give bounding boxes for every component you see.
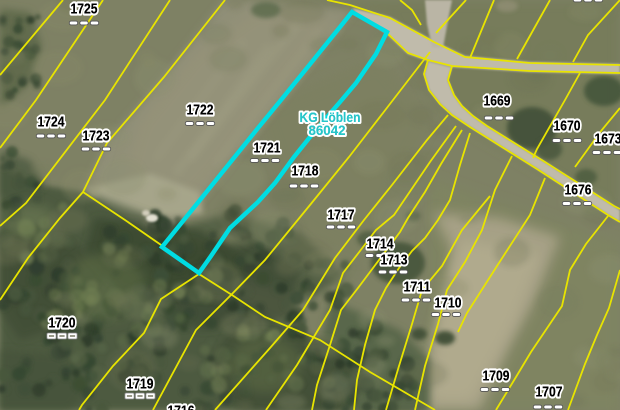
svg-text:1717: 1717 <box>328 206 355 223</box>
svg-text:1722: 1722 <box>187 101 214 118</box>
svg-text:1707: 1707 <box>536 383 563 400</box>
svg-text:1716: 1716 <box>168 402 195 410</box>
svg-text:1669: 1669 <box>484 92 511 109</box>
svg-text:1724: 1724 <box>38 113 66 130</box>
svg-text:86042: 86042 <box>309 122 346 138</box>
svg-text:1723: 1723 <box>83 127 110 144</box>
svg-text:1721: 1721 <box>254 139 281 156</box>
svg-text:1709: 1709 <box>483 367 510 384</box>
svg-text:1718: 1718 <box>292 162 319 179</box>
svg-text:1725: 1725 <box>71 0 98 17</box>
svg-text:1710: 1710 <box>435 294 462 311</box>
svg-text:1711: 1711 <box>404 278 431 295</box>
svg-text:1713: 1713 <box>381 251 408 268</box>
svg-text:1670: 1670 <box>554 117 581 134</box>
svg-text:1673: 1673 <box>595 130 620 147</box>
svg-text:1720: 1720 <box>49 314 76 331</box>
svg-text:1676: 1676 <box>565 181 592 198</box>
svg-text:1714: 1714 <box>367 235 395 252</box>
svg-text:1719: 1719 <box>127 375 154 392</box>
